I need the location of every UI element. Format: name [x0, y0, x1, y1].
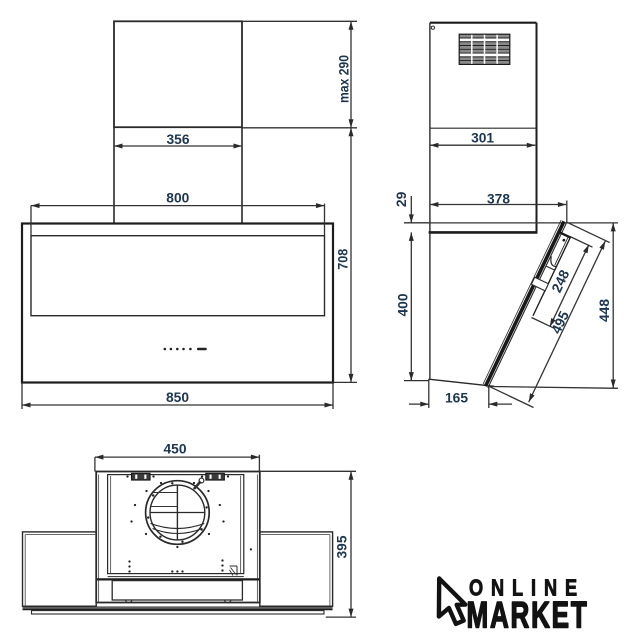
svg-text:301: 301	[471, 129, 494, 145]
svg-text:850: 850	[166, 389, 189, 405]
svg-text:356: 356	[167, 131, 190, 147]
svg-text:MARKET: MARKET	[467, 594, 589, 635]
svg-text:395: 395	[333, 535, 349, 558]
svg-text:800: 800	[166, 189, 189, 205]
svg-text:400: 400	[394, 293, 410, 316]
svg-text:29: 29	[393, 191, 409, 207]
svg-text:708: 708	[335, 249, 351, 270]
svg-text:165: 165	[445, 389, 468, 405]
svg-text:max 290: max 290	[336, 55, 351, 103]
svg-text:448: 448	[596, 299, 612, 322]
svg-text:450: 450	[164, 441, 187, 457]
svg-text:378: 378	[487, 190, 510, 206]
